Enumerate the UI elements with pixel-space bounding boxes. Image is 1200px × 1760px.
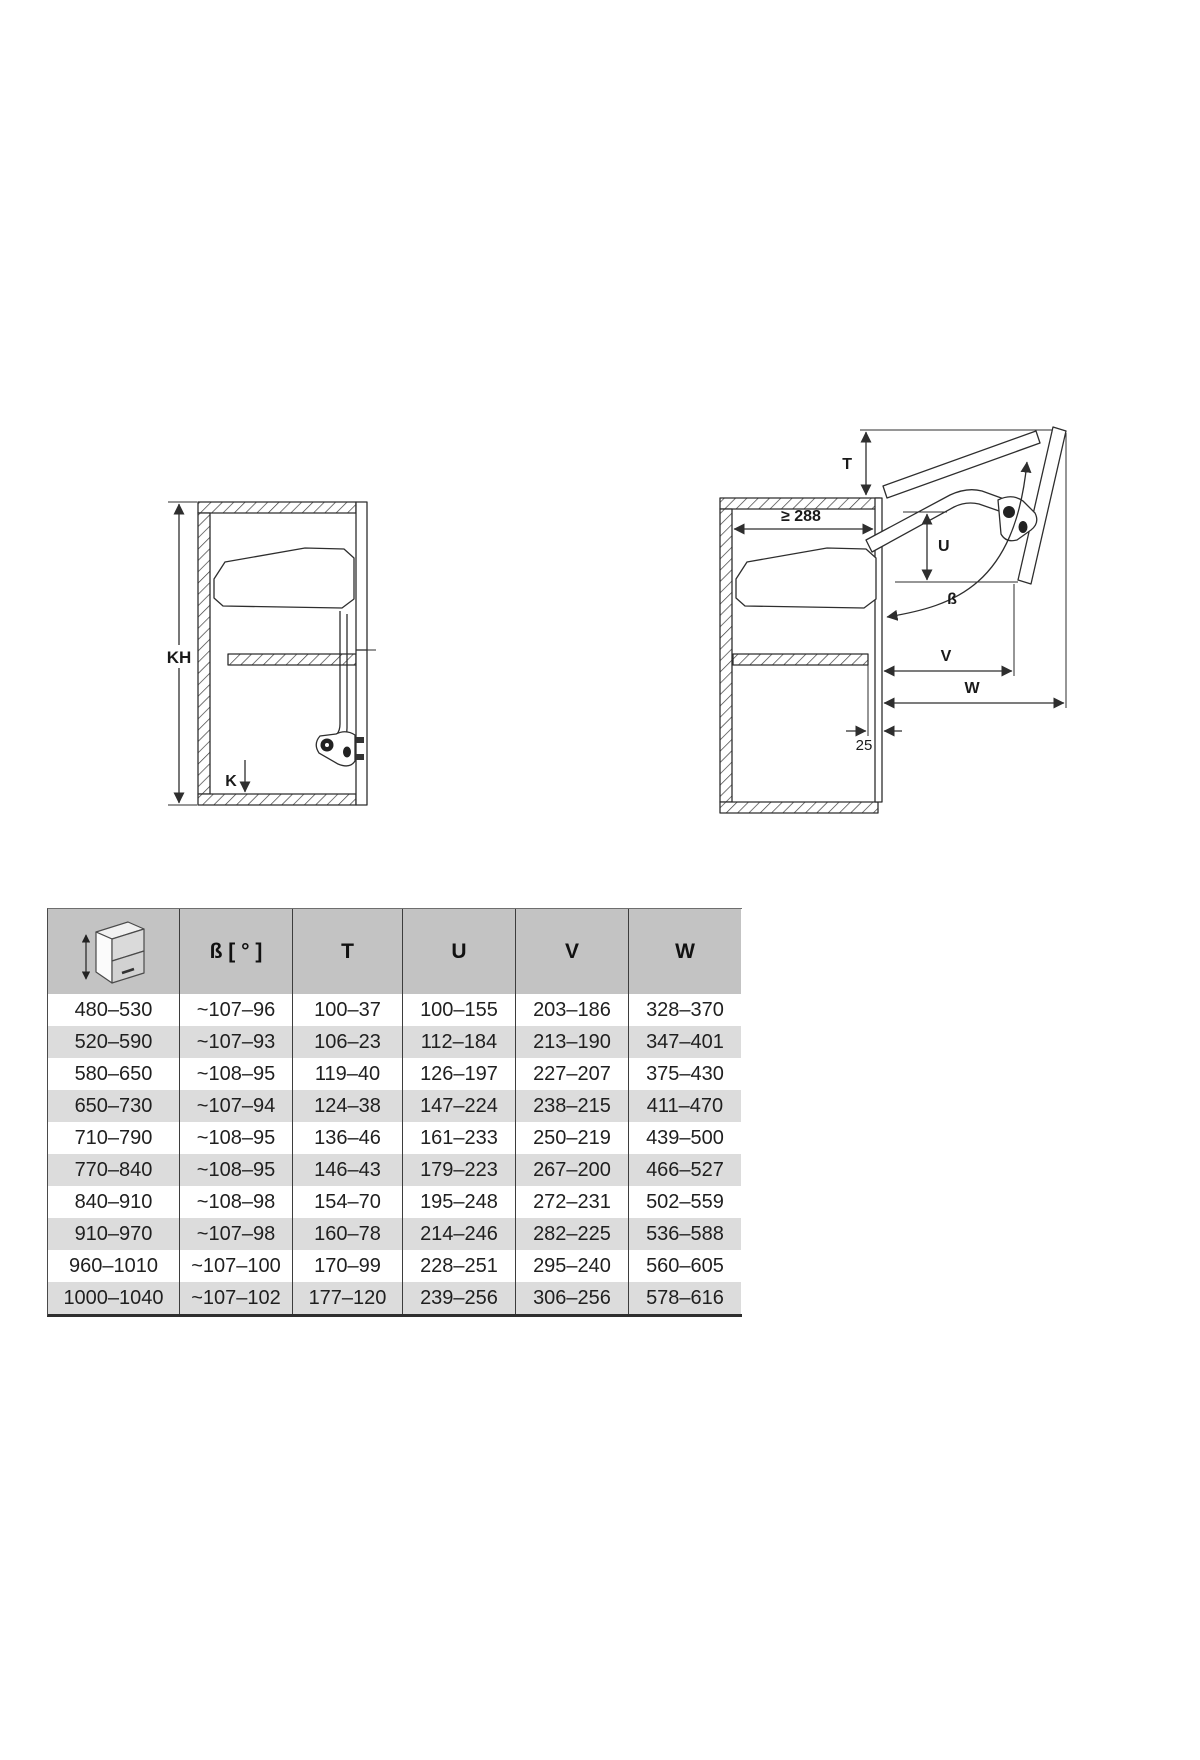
shelf [228, 654, 356, 665]
cell-v: 282–225 [516, 1218, 629, 1250]
cell-w: 560–605 [629, 1250, 741, 1282]
table-row: 1000–1040 ~107–102 177–120 239–256 306–2… [48, 1282, 742, 1314]
cell-kh: 580–650 [48, 1058, 180, 1090]
closed-cabinet-diagram: KH K [162, 502, 376, 805]
v-dimension-label: V [941, 648, 952, 665]
back-panel [198, 513, 210, 794]
cell-v: 203–186 [516, 994, 629, 1026]
header-cell-w: W [629, 909, 741, 994]
t-dimension-label: T [842, 456, 852, 473]
open-cabinet-diagram: T ≥ 288 U ß V W 25 [720, 427, 1066, 813]
cell-beta: ~107–93 [180, 1026, 293, 1058]
cell-w: 411–470 [629, 1090, 741, 1122]
table-row: 710–790 ~108–95 136–46 161–233 250–219 4… [48, 1122, 742, 1154]
table-row: 840–910 ~108–98 154–70 195–248 272–231 5… [48, 1186, 742, 1218]
cell-w: 439–500 [629, 1122, 741, 1154]
header-cell-beta: ß [ ° ] [180, 909, 293, 994]
cell-u: 147–224 [403, 1090, 516, 1122]
cell-v: 238–215 [516, 1090, 629, 1122]
cell-v: 295–240 [516, 1250, 629, 1282]
cell-w: 502–559 [629, 1186, 741, 1218]
cell-t: 136–46 [293, 1122, 403, 1154]
table-row: 770–840 ~108–95 146–43 179–223 267–200 4… [48, 1154, 742, 1186]
cell-t: 170–99 [293, 1250, 403, 1282]
cell-beta: ~108–95 [180, 1154, 293, 1186]
header-cell-kh [48, 909, 180, 994]
top-panel [198, 502, 356, 513]
cell-kh: 910–970 [48, 1218, 180, 1250]
cell-t: 100–37 [293, 994, 403, 1026]
cell-w: 536–588 [629, 1218, 741, 1250]
cell-w: 328–370 [629, 994, 741, 1026]
cell-u: 239–256 [403, 1282, 516, 1314]
technical-diagrams: KH K T ≥ 288 U [0, 0, 1200, 880]
cell-beta: ~108–95 [180, 1058, 293, 1090]
table-row: 910–970 ~107–98 160–78 214–246 282–225 5… [48, 1218, 742, 1250]
cell-w: 347–401 [629, 1026, 741, 1058]
table-row: 960–1010 ~107–100 170–99 228–251 295–240… [48, 1250, 742, 1282]
cell-v: 227–207 [516, 1058, 629, 1090]
cell-t: 160–78 [293, 1218, 403, 1250]
cell-w: 375–430 [629, 1058, 741, 1090]
table-row: 580–650 ~108–95 119–40 126–197 227–207 3… [48, 1058, 742, 1090]
cell-u: 126–197 [403, 1058, 516, 1090]
cell-kh: 520–590 [48, 1026, 180, 1058]
lift-arm [866, 490, 1004, 552]
cell-kh: 650–730 [48, 1090, 180, 1122]
cell-beta: ~107–102 [180, 1282, 293, 1314]
table-row: 650–730 ~107–94 124–38 147–224 238–215 4… [48, 1090, 742, 1122]
header-cell-v: V [516, 909, 629, 994]
front-offset-label: 25 [856, 737, 873, 754]
cell-kh: 710–790 [48, 1122, 180, 1154]
cell-beta: ~108–98 [180, 1186, 293, 1218]
k-dimension-label: K [225, 773, 237, 790]
cell-u: 100–155 [403, 994, 516, 1026]
table-header-row: ß [ ° ] T U V W [48, 909, 742, 994]
cell-t: 106–23 [293, 1026, 403, 1058]
dimension-table: ß [ ° ] T U V W 480–530 ~107–96 100–37 1… [47, 908, 742, 1317]
u-dimension-label: U [938, 538, 950, 555]
cell-beta: ~107–100 [180, 1250, 293, 1282]
table-row: 520–590 ~107–93 106–23 112–184 213–190 3… [48, 1026, 742, 1058]
bottom-panel [720, 802, 878, 813]
cell-t: 124–38 [293, 1090, 403, 1122]
header-cell-u: U [403, 909, 516, 994]
cell-t: 119–40 [293, 1058, 403, 1090]
cell-beta: ~107–98 [180, 1218, 293, 1250]
cell-w: 578–616 [629, 1282, 741, 1314]
back-panel [720, 509, 732, 802]
depth-dimension-label: ≥ 288 [781, 508, 821, 525]
table-row: 480–530 ~107–96 100–37 100–155 203–186 3… [48, 994, 742, 1026]
cell-beta: ~107–96 [180, 994, 293, 1026]
cell-u: 161–233 [403, 1122, 516, 1154]
lift-unit-body [736, 548, 876, 608]
door-top-flap [883, 431, 1040, 498]
cell-kh: 840–910 [48, 1186, 180, 1218]
cell-u: 179–223 [403, 1154, 516, 1186]
cell-v: 267–200 [516, 1154, 629, 1186]
cell-kh: 480–530 [48, 994, 180, 1026]
cell-beta: ~107–94 [180, 1090, 293, 1122]
cell-kh: 770–840 [48, 1154, 180, 1186]
cell-u: 112–184 [403, 1026, 516, 1058]
cell-u: 214–246 [403, 1218, 516, 1250]
bottom-panel [198, 794, 356, 805]
cell-t: 146–43 [293, 1154, 403, 1186]
cell-kh: 960–1010 [48, 1250, 180, 1282]
lift-unit-body [214, 548, 354, 608]
cell-v: 272–231 [516, 1186, 629, 1218]
cell-beta: ~108–95 [180, 1122, 293, 1154]
shelf [733, 654, 868, 665]
cabinet-height-icon [74, 915, 154, 989]
cell-v: 306–256 [516, 1282, 629, 1314]
spec-sheet-page: { "diagram_closed": { "kh_label": "KH", … [0, 0, 1200, 1760]
header-cell-t: T [293, 909, 403, 994]
cell-w: 466–527 [629, 1154, 741, 1186]
cell-kh: 1000–1040 [48, 1282, 180, 1314]
cell-t: 154–70 [293, 1186, 403, 1218]
w-dimension-label: W [964, 680, 980, 697]
cell-v: 250–219 [516, 1122, 629, 1154]
cell-t: 177–120 [293, 1282, 403, 1314]
cell-u: 228–251 [403, 1250, 516, 1282]
beta-angle-label: ß [947, 591, 957, 608]
cell-v: 213–190 [516, 1026, 629, 1058]
cell-u: 195–248 [403, 1186, 516, 1218]
kh-dimension-label: KH [167, 648, 192, 667]
